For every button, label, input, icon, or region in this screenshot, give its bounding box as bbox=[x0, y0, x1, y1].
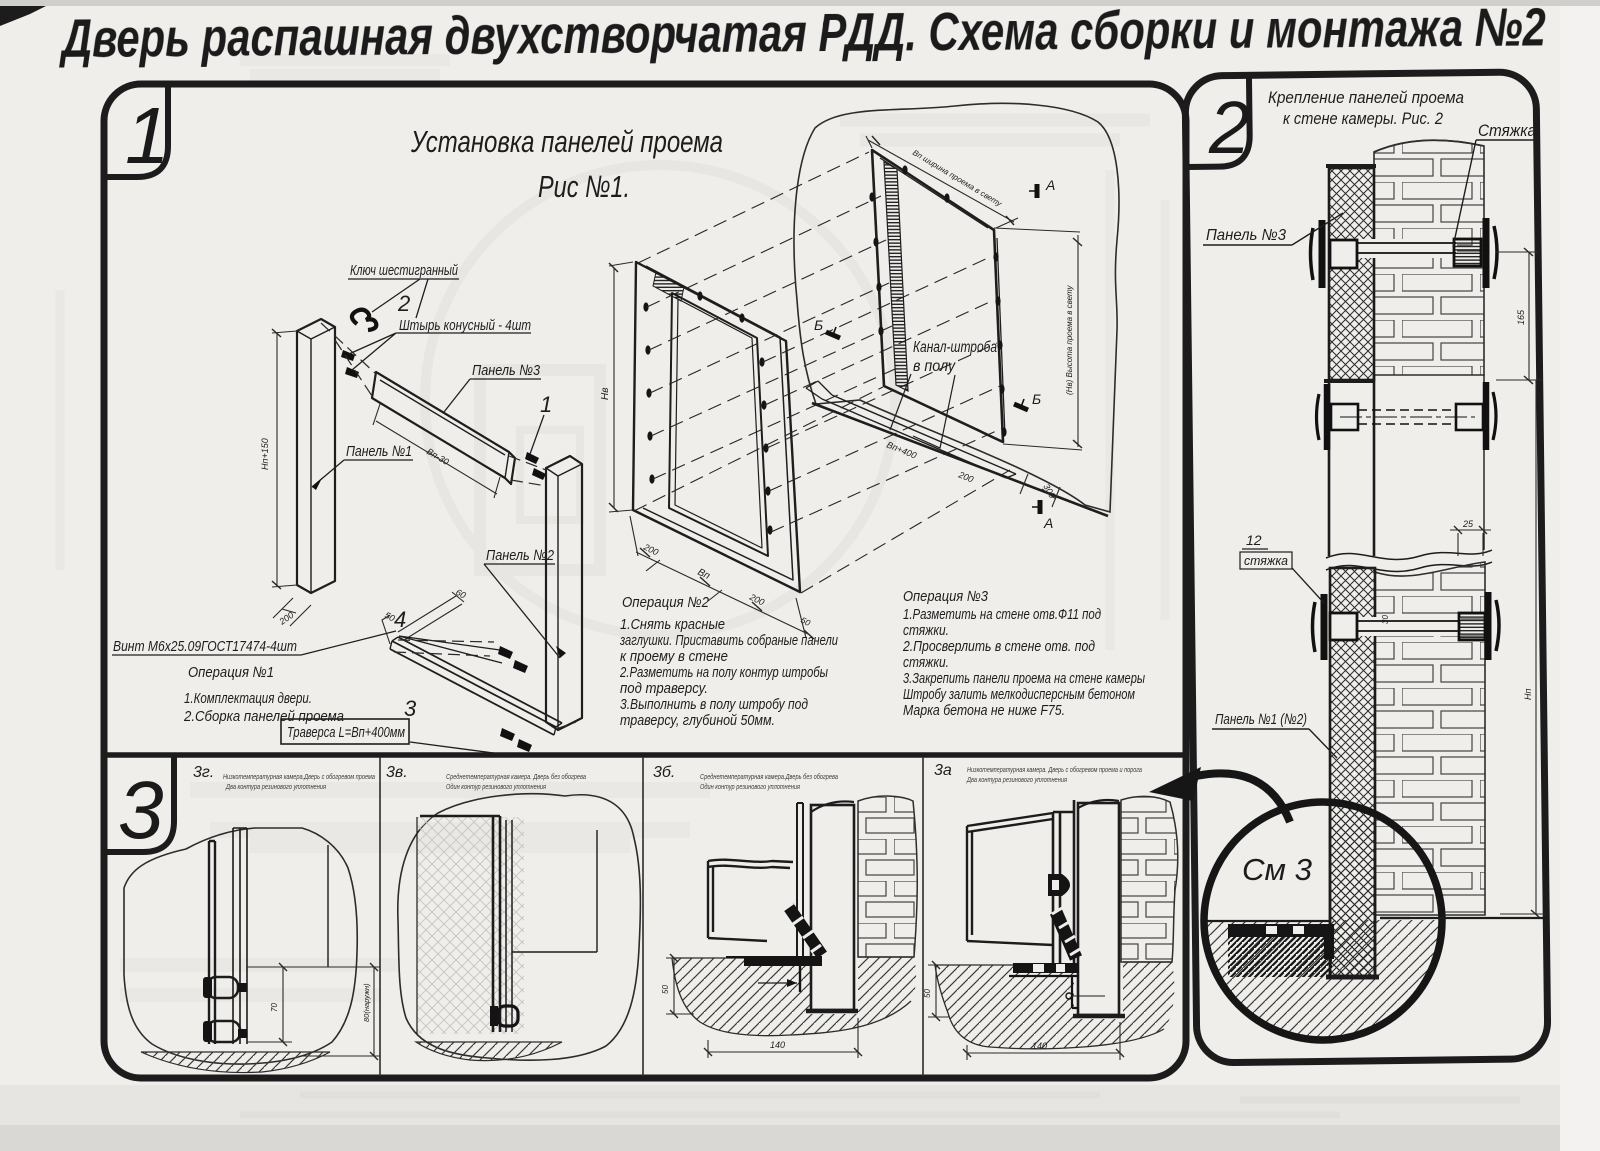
svg-text:3.Выполнить в полу штробу под: 3.Выполнить в полу штробу под bbox=[620, 697, 808, 713]
svg-text:в полу: в полу bbox=[913, 358, 956, 375]
svg-text:Стяжка: Стяжка bbox=[1478, 121, 1536, 140]
svg-text:Рис №1.: Рис №1. bbox=[538, 169, 630, 204]
svg-text:Панель №3: Панель №3 bbox=[472, 362, 541, 379]
svg-text:А: А bbox=[1043, 515, 1053, 531]
svg-text:Канал-штроба: Канал-штроба bbox=[913, 339, 997, 356]
svg-text:3: 3 bbox=[118, 765, 164, 856]
svg-text:4: 4 bbox=[394, 607, 406, 632]
svg-text:Штырь конусный - 4шт: Штырь конусный - 4шт bbox=[399, 317, 531, 334]
svg-text:Нп+150: Нп+150 bbox=[260, 438, 270, 470]
svg-text:См 3: См 3 bbox=[1242, 852, 1312, 887]
svg-text:Марка бетона не ниже F75.: Марка бетона не ниже F75. bbox=[903, 703, 1065, 719]
svg-text:Один контур резинового уплотне: Один контур резинового уплотнения bbox=[446, 782, 546, 791]
svg-text:Панель №1: Панель №1 bbox=[346, 443, 412, 460]
svg-text:Б: Б bbox=[814, 317, 823, 333]
svg-text:Крепление панелей проема: Крепление панелей проема bbox=[1268, 88, 1464, 107]
svg-text:Низкотемпературная камера. Две: Низкотемпературная камера. Дверь с обогр… bbox=[967, 765, 1142, 774]
svg-text:1.Разметить на стене отв.Ф11 п: 1.Разметить на стене отв.Ф11 под bbox=[903, 607, 1101, 623]
svg-text:Штробу залить мелкодисперсным: Штробу залить мелкодисперсным бетоном bbox=[903, 687, 1135, 703]
svg-text:3б.: 3б. bbox=[653, 764, 675, 781]
svg-text:Два контура резинового уплотне: Два контура резинового уплотнения bbox=[225, 782, 326, 791]
svg-text:Операция №2: Операция №2 bbox=[622, 595, 710, 611]
svg-text:1: 1 bbox=[540, 392, 552, 417]
svg-text:заглушки. Приставить собраные: заглушки. Приставить собраные панели bbox=[619, 633, 838, 649]
svg-text:25: 25 bbox=[1462, 519, 1474, 529]
svg-text:Низкотемпературная камера.Двер: Низкотемпературная камера.Дверь с обогре… bbox=[223, 772, 375, 781]
svg-text:Один контур резинового уплотне: Один контур резинового уплотнения bbox=[700, 782, 800, 791]
svg-text:140: 140 bbox=[770, 1040, 785, 1050]
svg-text:50: 50 bbox=[661, 985, 670, 994]
svg-text:50: 50 bbox=[923, 989, 932, 998]
svg-text:Панель №1 (№2): Панель №1 (№2) bbox=[1215, 711, 1307, 728]
svg-text:траверсу, глубиной 50мм.: траверсу, глубиной 50мм. bbox=[620, 713, 775, 729]
svg-text:стяжка: стяжка bbox=[1244, 553, 1288, 568]
svg-text:1.Комплектация двери.: 1.Комплектация двери. bbox=[184, 690, 312, 707]
svg-text:Операция №3: Операция №3 bbox=[903, 589, 989, 605]
svg-text:2: 2 bbox=[397, 291, 410, 316]
svg-text:2.Сборка панелей проема: 2.Сборка панелей проема bbox=[183, 708, 344, 725]
svg-text:Винт М6х25.09ГОСТ17474-4шт: Винт М6х25.09ГОСТ17474-4шт bbox=[113, 639, 297, 655]
svg-text:70: 70 bbox=[270, 1003, 279, 1012]
svg-text:2.Разметить на полу контур штр: 2.Разметить на полу контур штробы bbox=[619, 665, 828, 681]
svg-text:30: 30 bbox=[1381, 615, 1390, 624]
svg-text:Нв: Нв bbox=[600, 388, 611, 400]
svg-text:1: 1 bbox=[125, 91, 170, 180]
svg-text:Б: Б bbox=[1032, 391, 1041, 407]
svg-text:Панель №3: Панель №3 bbox=[1206, 227, 1286, 244]
svg-text:80(наружн): 80(наружн) bbox=[362, 983, 371, 1022]
svg-text:Панель №2: Панель №2 bbox=[486, 547, 555, 564]
svg-text:Дверь распашная двухстворчатая: Дверь распашная двухстворчатая РДД. Схем… bbox=[58, 0, 1546, 69]
svg-text:3.Закрепить панели проема на с: 3.Закрепить панели проема на стене камер… bbox=[903, 671, 1145, 687]
svg-text:12: 12 bbox=[1246, 532, 1262, 548]
svg-text:(Нв) Высота проема в свету: (Нв) Высота проема в свету bbox=[1065, 285, 1074, 395]
svg-text:3а: 3а bbox=[934, 762, 952, 779]
svg-text:Операция №1: Операция №1 bbox=[188, 664, 274, 681]
svg-text:3: 3 bbox=[404, 696, 417, 721]
svg-text:3в.: 3в. bbox=[386, 764, 408, 781]
svg-text:140: 140 bbox=[1032, 1041, 1047, 1051]
svg-text:Среднетемпературная камера. Дв: Среднетемпературная камера. Дверь без об… bbox=[446, 772, 586, 781]
svg-text:А: А bbox=[1045, 177, 1055, 193]
svg-text:Нп: Нп bbox=[1523, 689, 1533, 700]
svg-text:Траверса L=Вп+400мм: Траверса L=Вп+400мм bbox=[287, 725, 405, 741]
svg-text:под траверсу.: под траверсу. bbox=[620, 681, 708, 697]
svg-text:1.Снять красные: 1.Снять красные bbox=[620, 617, 725, 633]
svg-text:к стене камеры. Рис. 2: к стене камеры. Рис. 2 bbox=[1283, 109, 1443, 128]
svg-text:2.Просверлить в стене отв. п: 2.Просверлить в стене отв. под bbox=[902, 639, 1095, 655]
svg-text:Установка панелей проема: Установка панелей проема bbox=[410, 124, 723, 159]
svg-text:стяжки.: стяжки. bbox=[903, 655, 949, 671]
svg-text:стяжки.: стяжки. bbox=[903, 623, 949, 639]
svg-text:2: 2 bbox=[1208, 86, 1250, 169]
svg-text:Два контура резинового уплотне: Два контура резинового уплотнения bbox=[966, 775, 1067, 784]
svg-text:3г.: 3г. bbox=[193, 764, 214, 781]
svg-text:к проему в стене: к проему в стене bbox=[620, 649, 728, 665]
svg-text:Среднетемпературная камера.Две: Среднетемпературная камера.Дверь без обо… bbox=[700, 772, 838, 781]
svg-text:Ключ шестигранный: Ключ шестигранный bbox=[350, 262, 458, 279]
svg-text:165: 165 bbox=[1516, 309, 1526, 325]
